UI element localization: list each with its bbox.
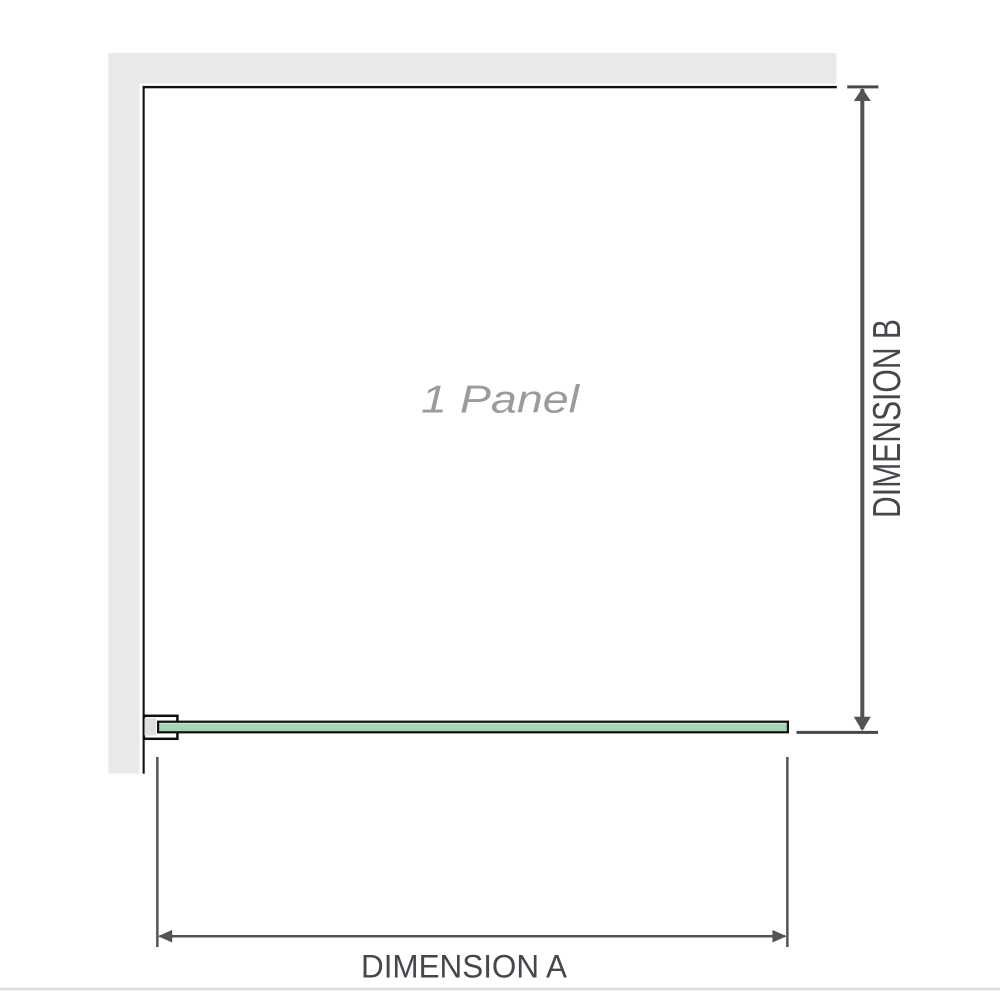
svg-text:1 Panel: 1 Panel [421,378,581,421]
svg-text:DIMENSION B: DIMENSION B [866,319,909,518]
svg-text:DIMENSION A: DIMENSION A [361,948,567,985]
